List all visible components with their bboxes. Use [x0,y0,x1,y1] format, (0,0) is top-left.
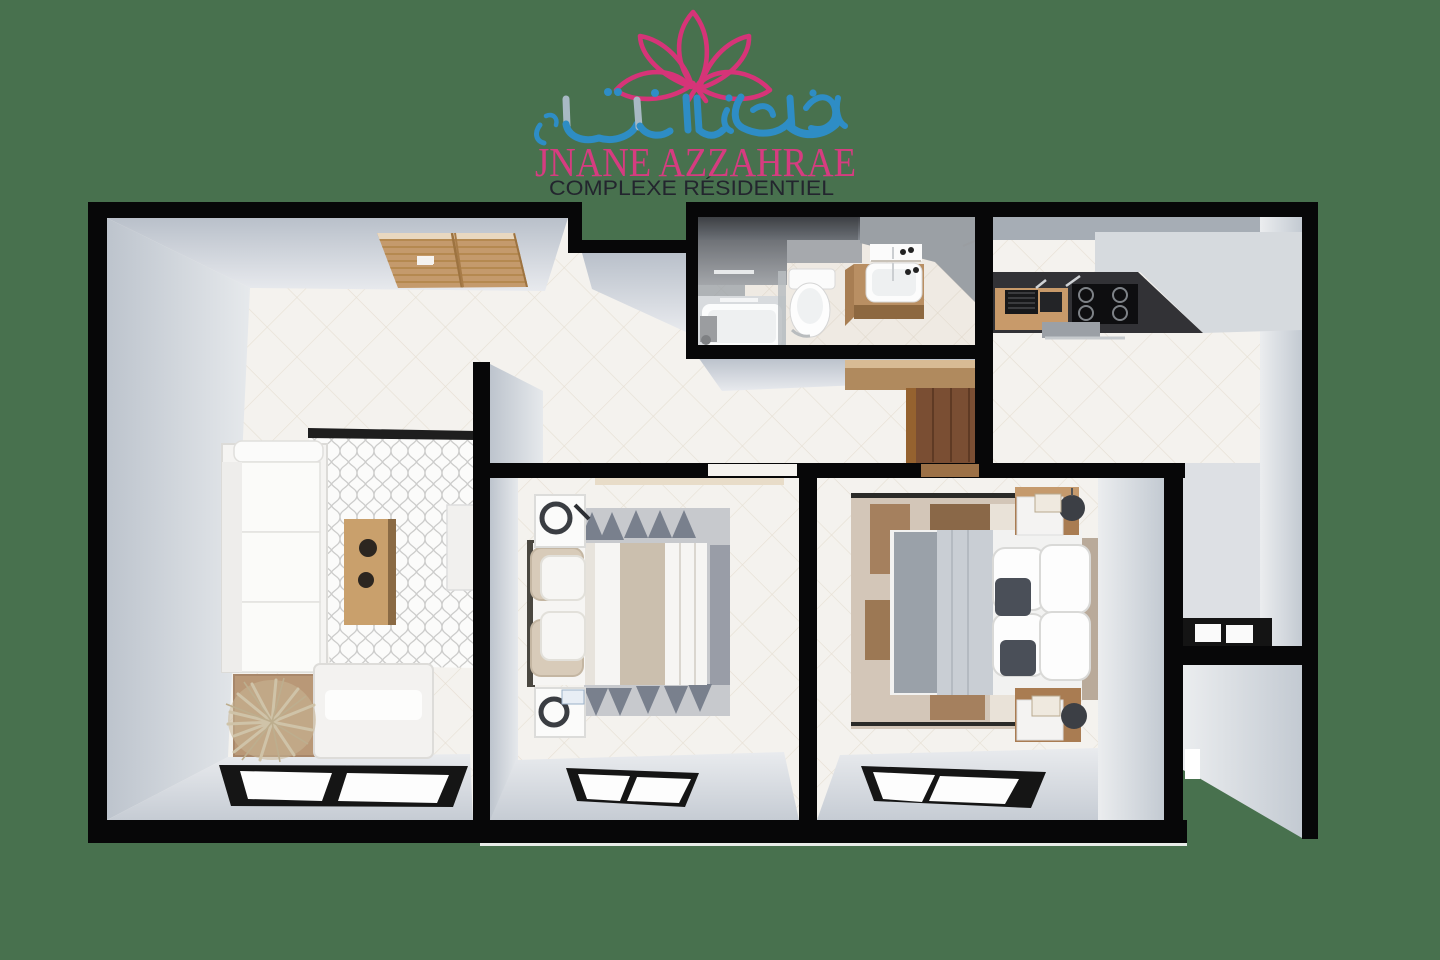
svg-text:COMPLEXE RÉSIDENTIEL: COMPLEXE RÉSIDENTIEL [549,177,834,200]
